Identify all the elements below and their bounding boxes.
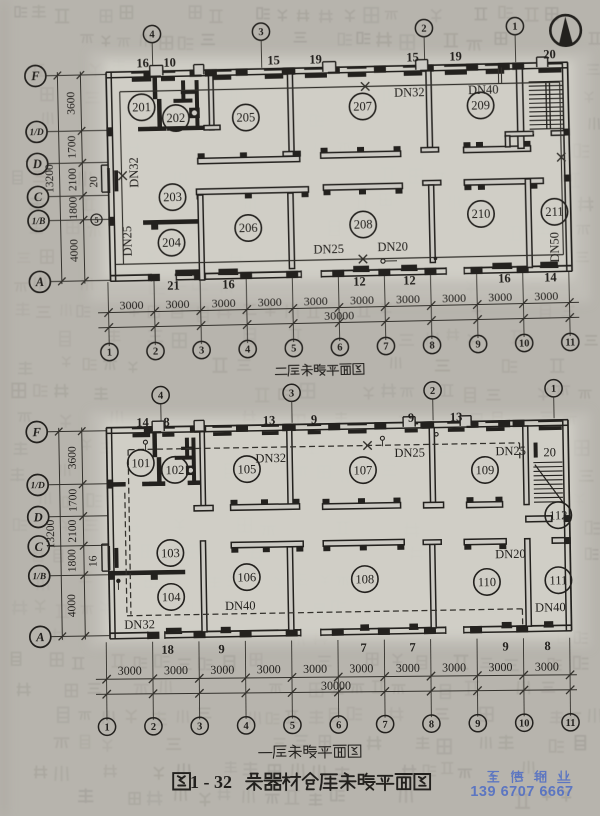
svg-text:3600: 3600 <box>65 91 78 115</box>
svg-text:3: 3 <box>289 388 294 399</box>
svg-text:9: 9 <box>502 639 508 653</box>
svg-text:DN32: DN32 <box>127 157 142 188</box>
svg-text:3000: 3000 <box>442 291 466 306</box>
svg-text:12: 12 <box>353 274 366 288</box>
svg-text:13200: 13200 <box>45 519 58 548</box>
svg-text:10: 10 <box>163 56 176 70</box>
svg-text:16: 16 <box>222 277 235 291</box>
svg-text:20: 20 <box>543 445 556 459</box>
svg-text:DN25: DN25 <box>313 242 344 257</box>
svg-text:139 6707 6667: 139 6707 6667 <box>470 784 573 800</box>
svg-text:13: 13 <box>263 413 276 427</box>
svg-text:15: 15 <box>406 50 419 64</box>
svg-text:3000: 3000 <box>488 660 512 674</box>
svg-text:1800: 1800 <box>66 549 78 572</box>
svg-text:2: 2 <box>430 386 435 397</box>
svg-text:20: 20 <box>543 47 556 61</box>
svg-text:3: 3 <box>197 722 202 733</box>
svg-text:DN40: DN40 <box>225 598 256 613</box>
svg-text:DN25: DN25 <box>495 444 526 459</box>
svg-text:3000: 3000 <box>258 295 282 310</box>
svg-text:20: 20 <box>88 176 100 188</box>
svg-text:3000: 3000 <box>165 297 189 312</box>
svg-text:205: 205 <box>236 111 255 125</box>
svg-text:103: 103 <box>161 546 180 560</box>
svg-text:108: 108 <box>355 572 374 586</box>
svg-text:3000: 3000 <box>396 661 420 675</box>
svg-text:DN25: DN25 <box>120 226 135 257</box>
svg-text:3000: 3000 <box>396 292 420 307</box>
svg-text:1/B: 1/B <box>32 217 46 227</box>
svg-text:202: 202 <box>166 111 185 125</box>
svg-text:30000: 30000 <box>321 678 351 692</box>
svg-text:14: 14 <box>544 270 558 284</box>
svg-text:211: 211 <box>545 205 564 219</box>
svg-text:2100: 2100 <box>67 168 80 192</box>
svg-text:10: 10 <box>519 718 530 729</box>
svg-text:C: C <box>34 190 43 204</box>
svg-text:2: 2 <box>421 24 426 35</box>
svg-text:201: 201 <box>132 100 151 114</box>
svg-text:7: 7 <box>383 342 388 353</box>
svg-text:208: 208 <box>354 218 373 232</box>
svg-text:1: 1 <box>512 22 517 33</box>
svg-text:3000: 3000 <box>534 289 558 304</box>
svg-text:2: 2 <box>151 722 156 733</box>
svg-text:206: 206 <box>239 221 258 235</box>
svg-text:DN40: DN40 <box>535 600 566 615</box>
svg-text:3: 3 <box>199 346 204 357</box>
svg-text:2100: 2100 <box>67 519 79 542</box>
svg-text:A: A <box>35 630 45 644</box>
svg-text:3600: 3600 <box>66 446 78 469</box>
svg-text:9: 9 <box>218 642 224 656</box>
svg-text:1700: 1700 <box>66 135 79 159</box>
svg-text:9: 9 <box>475 719 480 730</box>
svg-text:5: 5 <box>94 215 98 225</box>
svg-text:D: D <box>32 157 42 171</box>
svg-text:3000: 3000 <box>212 296 236 311</box>
svg-text:6: 6 <box>337 343 342 354</box>
svg-text:DN32: DN32 <box>124 617 155 632</box>
svg-text:C: C <box>34 540 43 554</box>
svg-text:101: 101 <box>131 456 150 470</box>
svg-text:9: 9 <box>311 412 317 426</box>
svg-text:12: 12 <box>403 273 416 287</box>
svg-text:5: 5 <box>290 721 295 732</box>
svg-text:DN32: DN32 <box>255 451 286 466</box>
svg-text:1700: 1700 <box>67 488 79 511</box>
svg-text:1/D: 1/D <box>30 481 45 491</box>
svg-text:11: 11 <box>565 338 575 349</box>
svg-text:1/B: 1/B <box>32 572 46 582</box>
svg-text:18: 18 <box>161 643 174 657</box>
svg-text:1: 1 <box>104 722 109 733</box>
svg-text:207: 207 <box>353 99 372 113</box>
svg-text:DN25: DN25 <box>394 446 425 461</box>
svg-text:209: 209 <box>471 98 490 112</box>
svg-text:110: 110 <box>478 575 497 589</box>
svg-text:8: 8 <box>429 341 434 352</box>
svg-text:3000: 3000 <box>118 663 142 677</box>
svg-text:16: 16 <box>498 271 511 285</box>
svg-text:16: 16 <box>87 555 99 567</box>
svg-text:DN20: DN20 <box>377 240 408 255</box>
svg-text:3: 3 <box>258 27 263 38</box>
svg-text:9: 9 <box>408 411 414 425</box>
svg-text:21: 21 <box>167 279 180 293</box>
svg-text:107: 107 <box>353 463 372 477</box>
svg-text:3000: 3000 <box>349 661 373 675</box>
svg-text:111: 111 <box>549 573 567 587</box>
svg-text:4: 4 <box>158 391 164 402</box>
svg-text:DN32: DN32 <box>394 85 425 100</box>
svg-text:4000: 4000 <box>66 594 78 617</box>
svg-text:104: 104 <box>162 590 182 604</box>
svg-text:1: 1 <box>107 348 112 359</box>
svg-text:16: 16 <box>136 56 149 70</box>
svg-text:203: 203 <box>163 190 182 204</box>
svg-text:F: F <box>31 425 41 439</box>
svg-text:4: 4 <box>243 721 249 732</box>
svg-text:5: 5 <box>291 344 296 355</box>
svg-text:109: 109 <box>475 463 494 477</box>
svg-text:11: 11 <box>566 718 576 729</box>
svg-text:102: 102 <box>165 463 184 477</box>
svg-text:3000: 3000 <box>304 294 328 309</box>
svg-text:30000: 30000 <box>324 308 354 323</box>
svg-text:105: 105 <box>237 462 256 476</box>
svg-text:1: 1 <box>551 384 556 395</box>
svg-text:204: 204 <box>162 236 182 250</box>
svg-text:14: 14 <box>136 415 149 429</box>
svg-text:9: 9 <box>475 340 480 351</box>
svg-text:3000: 3000 <box>164 663 188 677</box>
svg-text:10: 10 <box>519 339 530 350</box>
svg-text:13200: 13200 <box>44 164 57 193</box>
svg-text:3000: 3000 <box>257 662 281 676</box>
svg-text:4000: 4000 <box>68 239 81 263</box>
svg-text:15: 15 <box>267 53 280 67</box>
svg-text:106: 106 <box>237 570 256 584</box>
svg-text:13: 13 <box>450 410 463 424</box>
svg-text:3000: 3000 <box>350 293 374 308</box>
svg-text:1/D: 1/D <box>29 128 44 138</box>
svg-text:3000: 3000 <box>210 663 234 677</box>
svg-text:3000: 3000 <box>442 660 466 674</box>
svg-text:1800: 1800 <box>68 196 81 220</box>
svg-text:19: 19 <box>309 52 322 66</box>
svg-text:8: 8 <box>163 415 169 429</box>
svg-text:6: 6 <box>336 720 341 731</box>
svg-text:19: 19 <box>449 49 462 63</box>
svg-text:8: 8 <box>544 639 550 653</box>
svg-text:210: 210 <box>471 207 490 221</box>
svg-text:DN20: DN20 <box>495 547 526 562</box>
svg-text:112: 112 <box>549 508 568 522</box>
svg-text:DN50: DN50 <box>547 232 562 263</box>
svg-text:D: D <box>33 510 43 524</box>
svg-text:3000: 3000 <box>303 662 327 676</box>
svg-text:7: 7 <box>382 720 387 731</box>
svg-text:3000: 3000 <box>119 298 143 313</box>
svg-text:7: 7 <box>360 641 366 655</box>
svg-text:A: A <box>35 275 45 289</box>
svg-text:3000: 3000 <box>488 290 512 305</box>
svg-text:2: 2 <box>153 347 158 358</box>
svg-text:1 - 32: 1 - 32 <box>190 772 232 792</box>
svg-text:3000: 3000 <box>535 659 559 673</box>
svg-text:8: 8 <box>429 719 434 730</box>
svg-text:F: F <box>30 69 40 83</box>
svg-text:7: 7 <box>409 640 415 654</box>
